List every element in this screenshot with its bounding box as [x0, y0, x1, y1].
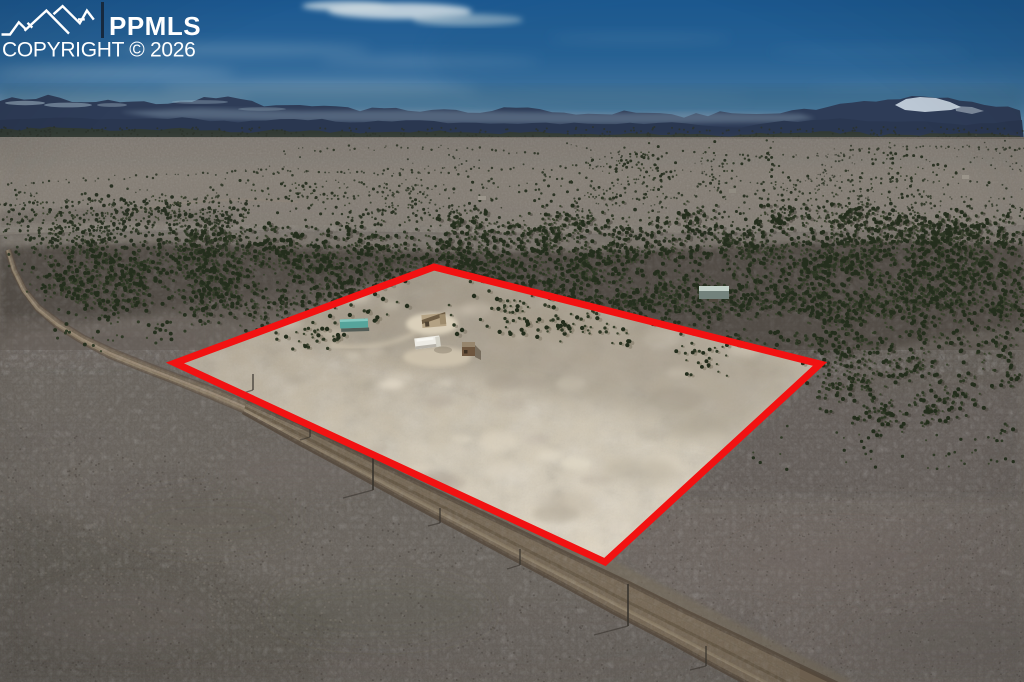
- svg-text:COPYRIGHT © 2026: COPYRIGHT © 2026: [2, 39, 196, 62]
- svg-text:PPMLS: PPMLS: [109, 11, 201, 41]
